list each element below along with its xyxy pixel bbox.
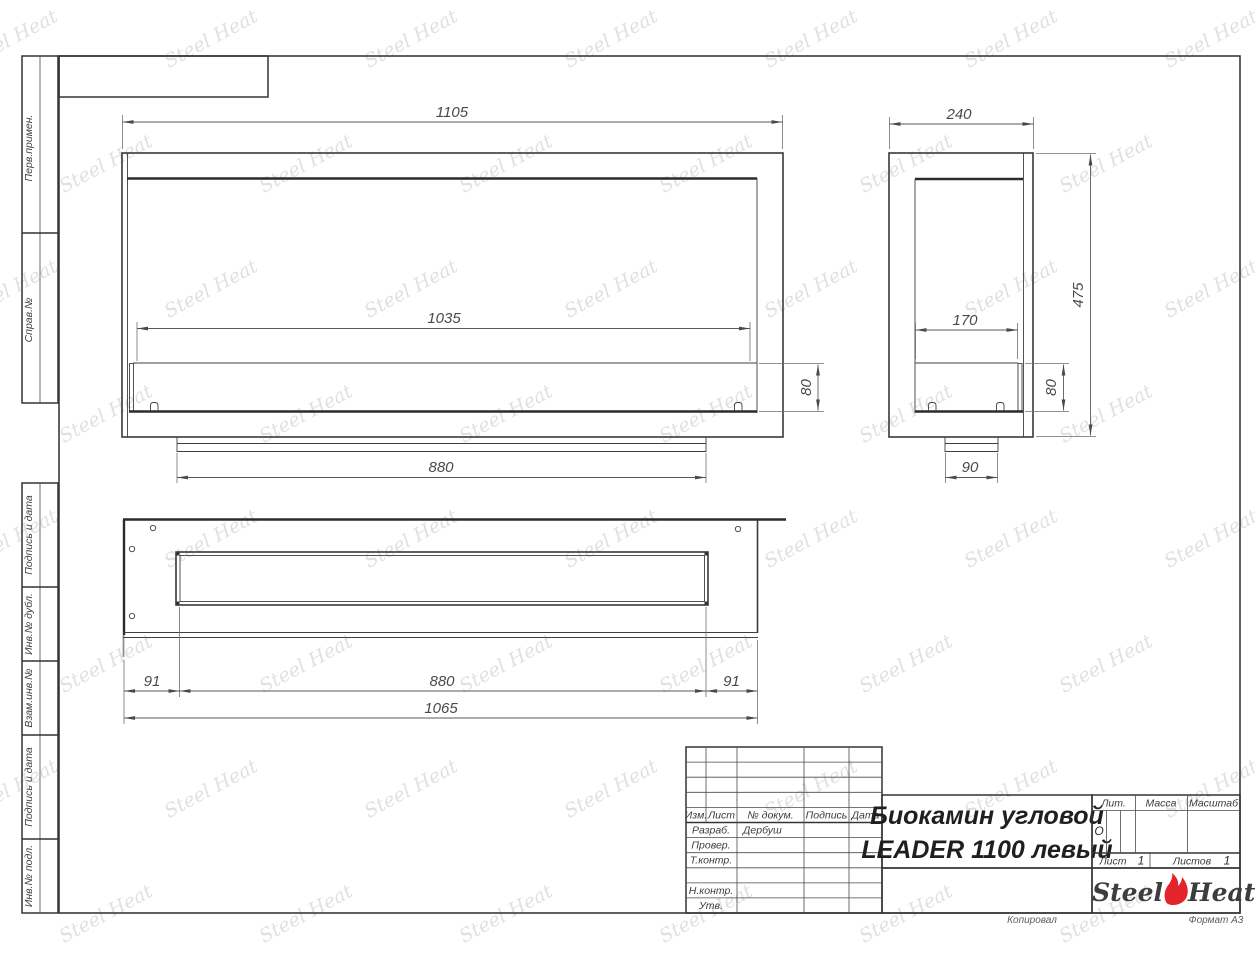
title-block: Изм. Лист № докум. Подпись Дата Разраб. … bbox=[685, 747, 1255, 926]
sheet-frame bbox=[59, 56, 1240, 913]
mount-hole bbox=[150, 525, 155, 530]
svg-text:1035: 1035 bbox=[427, 310, 461, 327]
front-glass-edge bbox=[1018, 364, 1022, 412]
svg-text:170: 170 bbox=[952, 312, 978, 329]
logo-heat: Heat bbox=[1187, 878, 1255, 907]
svg-text:475: 475 bbox=[1070, 282, 1087, 308]
top-view: 91 880 91 1065 bbox=[123, 520, 786, 725]
dim-side-fuel-block-height: 80 bbox=[1025, 364, 1069, 412]
dim-front-overall-width: 1105 bbox=[123, 104, 783, 149]
row-prover: Провер. bbox=[691, 840, 730, 852]
dim-front-base-width: 880 bbox=[177, 453, 706, 483]
margin-label-perv-primen: Перв.примен. bbox=[23, 115, 35, 182]
svg-text:80: 80 bbox=[1043, 379, 1060, 396]
copied-note: Копировал bbox=[1007, 915, 1057, 926]
dim-side-base-depth: 90 bbox=[946, 453, 998, 483]
mass-label: Масса bbox=[1145, 798, 1176, 810]
razrab-name: Дербуш bbox=[742, 825, 782, 837]
svg-text:90: 90 bbox=[962, 459, 979, 476]
svg-text:1065: 1065 bbox=[424, 700, 458, 717]
dim-front-fuel-block-height: 80 bbox=[759, 364, 824, 412]
scale-label: Масштаб bbox=[1189, 798, 1239, 810]
engineering-drawing: Перв.примен. Справ.№ Подпись и дата Инв.… bbox=[0, 0, 1255, 970]
svg-text:91: 91 bbox=[144, 673, 161, 690]
margin-label-podpis-data-2: Подпись и дата bbox=[23, 747, 35, 827]
format-note: Формат А3 bbox=[1189, 915, 1244, 926]
drawing-sheet: Steel HeatSteel HeatSteel HeatSteel Heat… bbox=[0, 0, 1255, 970]
row-razrab: Разраб. bbox=[692, 825, 730, 837]
pedestal bbox=[177, 437, 706, 452]
left-glass-edge bbox=[130, 364, 134, 412]
doc-title-line1: Биокамин угловой bbox=[870, 802, 1104, 830]
lit-label: Лит. bbox=[1100, 798, 1126, 810]
front-view: 1105 1035 80 880 bbox=[122, 104, 824, 483]
col-izm: Изм. bbox=[685, 810, 707, 822]
sheet-value: 1 bbox=[1138, 854, 1145, 868]
burner-clip bbox=[997, 403, 1005, 412]
doc-title-line2: LEADER 1100 левый bbox=[861, 836, 1112, 864]
col-podpis: Подпись bbox=[806, 810, 848, 822]
row-nkontr: Н.контр. bbox=[689, 885, 733, 897]
sheets-label: Листов bbox=[1172, 856, 1212, 868]
svg-text:80: 80 bbox=[798, 379, 815, 396]
dim-front-opening-width: 1035 bbox=[137, 310, 750, 361]
pedestal bbox=[945, 437, 998, 452]
left-margin-graphs: Перв.примен. Справ.№ Подпись и дата Инв.… bbox=[22, 56, 58, 913]
burner-clip bbox=[929, 403, 937, 412]
burner-clip bbox=[735, 403, 743, 412]
sheets-value: 1 bbox=[1224, 854, 1231, 868]
margin-label-inv-no-dubl: Инв.№ дубл. bbox=[23, 593, 35, 655]
svg-text:91: 91 bbox=[723, 673, 740, 690]
dim-side-opening-depth: 170 bbox=[916, 312, 1018, 359]
steelheat-logo: Steel Heat bbox=[1092, 873, 1255, 907]
mount-hole bbox=[129, 546, 134, 551]
mount-hole bbox=[735, 526, 740, 531]
svg-text:880: 880 bbox=[429, 673, 455, 690]
margin-label-sprav-no: Справ.№ bbox=[23, 298, 35, 343]
top-left-stamp-box bbox=[59, 56, 268, 97]
margin-label-vzam-inv-no: Взам.инв.№ bbox=[23, 668, 35, 727]
flame-icon bbox=[1165, 873, 1188, 905]
sheet-label: Лист bbox=[1098, 856, 1126, 868]
row-tkontr: Т.контр. bbox=[690, 855, 732, 867]
dim-top-row: 91 880 91 1065 bbox=[124, 607, 758, 724]
row-utv: Утв. bbox=[698, 900, 723, 912]
col-doc-no: № докум. bbox=[747, 810, 793, 822]
col-list: Лист bbox=[707, 810, 735, 822]
burner-slot bbox=[176, 552, 708, 605]
lit-value: О bbox=[1094, 824, 1103, 838]
burner-clip bbox=[151, 403, 159, 412]
mount-hole bbox=[129, 613, 134, 618]
svg-text:240: 240 bbox=[945, 106, 972, 123]
dim-side-overall-depth: 240 bbox=[890, 106, 1034, 149]
margin-label-podpis-data-1: Подпись и дата bbox=[23, 495, 35, 575]
logo-steel: Steel bbox=[1092, 878, 1163, 907]
svg-text:1105: 1105 bbox=[436, 104, 469, 121]
svg-text:880: 880 bbox=[428, 459, 454, 476]
side-view: 240 475 170 80 bbox=[889, 106, 1096, 483]
margin-label-inv-no-podl: Инв.№ подл. bbox=[23, 845, 35, 907]
